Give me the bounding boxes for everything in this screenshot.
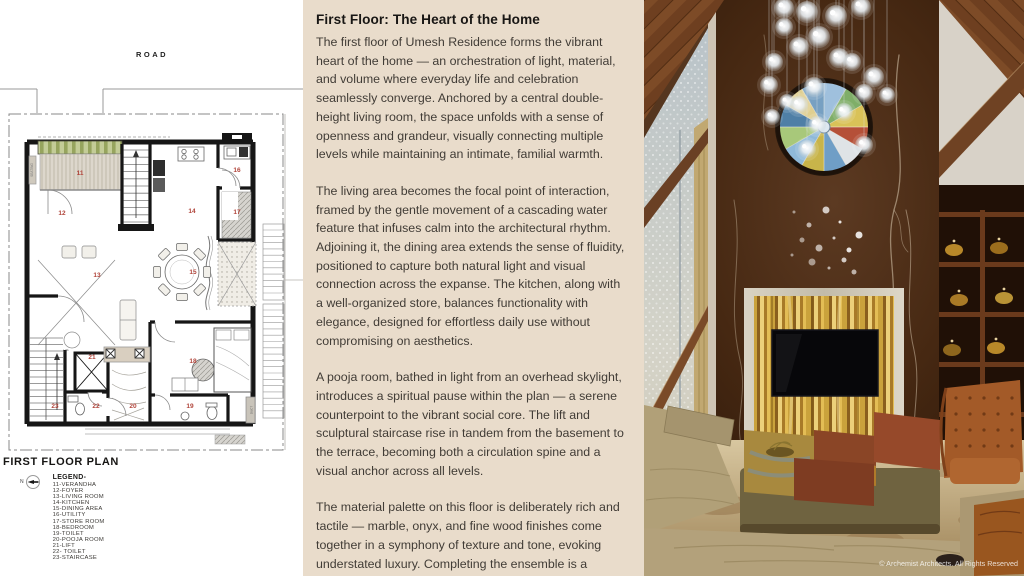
interior-photo-art: © Archemist Architects. All Rights Reser… [644,0,1024,576]
pooja-texture [112,370,146,420]
room-number: 22 [92,403,100,410]
bedroom-furniture [172,328,251,392]
article-panel: First Floor: The Heart of the Home The f… [303,0,644,576]
room-number: 18 [189,358,197,365]
road-label: ROAD [136,50,168,59]
duct-label: DUCT [250,406,254,414]
interior-photo: © Archemist Architects. All Rights Reser… [644,0,1024,576]
room-number: 17 [233,209,241,216]
room-number: 12 [58,210,66,217]
side-stair-upper [263,230,284,293]
room-number: 16 [233,167,241,174]
room-number: 11 [77,170,84,177]
room-number: 14 [188,208,196,215]
room-number: 23 [51,403,59,410]
article-title: First Floor: The Heart of the Home [316,12,626,27]
legend-item: 23-STAIRCASE [53,555,105,561]
room-number: 13 [93,272,101,279]
legend-title: LEGEND- [53,474,105,481]
article-paragraph: A pooja room, bathed in light from an ov… [316,368,626,480]
room-number: 19 [186,403,194,410]
floor-plan-drawing: ROAD SEATING UP [0,0,303,455]
article-paragraph: The living area becomes the focal point … [316,182,626,350]
article-body: The first floor of Umesh Residence forms… [316,33,626,576]
seating-label: SEATING [30,163,34,177]
page: { "left_panel": { "road_label": "ROAD", … [0,0,1024,576]
side-stair-lower [263,310,284,411]
article-paragraph: The material palette on this floor is de… [316,498,626,576]
floor-plan-panel: ROAD SEATING UP [0,0,303,576]
photo-credit: © Archemist Architects. All Rights Reser… [879,559,1018,568]
door-arcs [48,168,240,416]
article-paragraph: The first floor of Umesh Residence forms… [316,33,626,164]
room-number: 15 [189,269,197,276]
legend-list: 11-VERANDHA12-FOYER13-LIVING ROOM14-KITC… [53,482,105,561]
room-number: 20 [129,403,137,410]
legend-item: 17-STORE ROOM [53,519,105,525]
road-edge-lines [0,89,303,113]
north-arrow-icon: N [20,474,41,561]
up-label: UP [63,348,69,353]
plan-title: FIRST FLOOR PLAN [3,456,303,468]
plan-caption: FIRST FLOOR PLAN N LEGEND- 11-VERANDHA12… [3,456,303,561]
room-number: 21 [88,354,96,361]
dining-table [154,244,211,301]
